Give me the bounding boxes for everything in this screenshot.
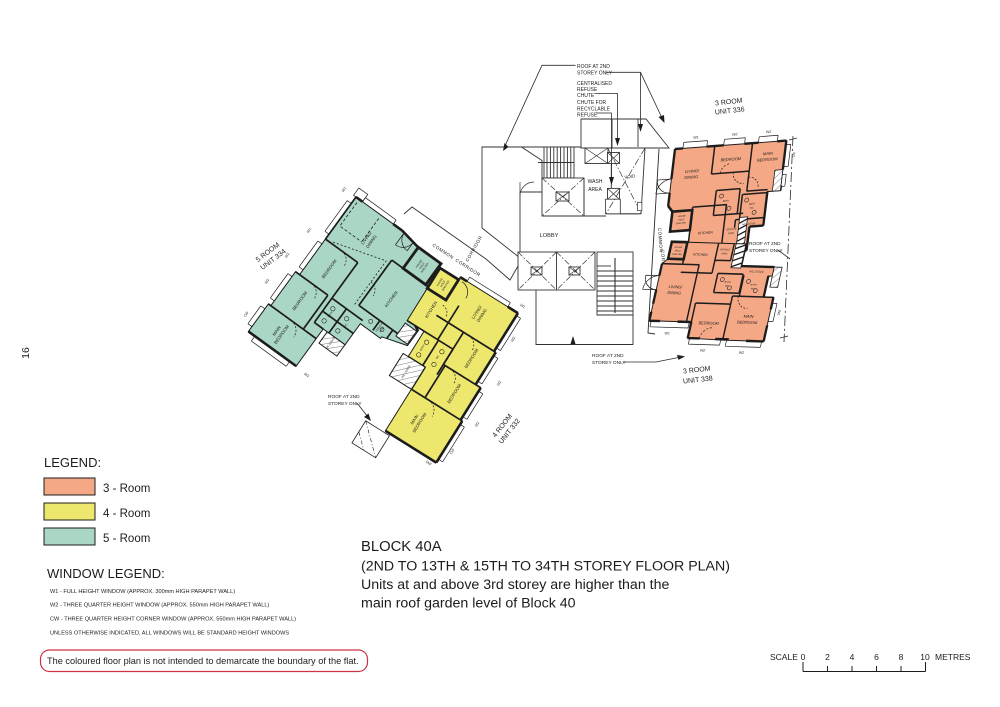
svg-text:UNLESS OTHERWISE INDICATED, AL: UNLESS OTHERWISE INDICATED, ALL WINDOWS … bbox=[50, 631, 289, 637]
svg-text:CW - THREE QUARTER HEIGHT CORN: CW - THREE QUARTER HEIGHT CORNER WINDOW … bbox=[50, 617, 296, 623]
svg-text:W1 - FULL HEIGHT WINDOW (APPRO: W1 - FULL HEIGHT WINDOW (APPROX. 300mm H… bbox=[50, 589, 235, 595]
svg-text:WASH: WASH bbox=[588, 179, 603, 185]
svg-text:KITCHEN: KITCHEN bbox=[693, 252, 709, 256]
svg-text:LEGEND:: LEGEND: bbox=[44, 455, 101, 470]
svg-text:CHUTE FOR: CHUTE FOR bbox=[577, 100, 607, 106]
svg-text:W2: W2 bbox=[732, 132, 738, 136]
svg-text:BLOCK 40A: BLOCK 40A bbox=[361, 539, 442, 555]
svg-text:BATH: BATH bbox=[724, 281, 731, 284]
svg-text:4 - Room: 4 - Room bbox=[103, 508, 150, 520]
svg-text:STOREY ONLY: STOREY ONLY bbox=[592, 360, 626, 366]
svg-text:MAIN: MAIN bbox=[743, 314, 754, 319]
svg-text:METRES: METRES bbox=[935, 652, 971, 662]
svg-text:DINING: DINING bbox=[667, 290, 682, 295]
svg-text:WC: WC bbox=[723, 203, 728, 206]
svg-text:SHELTER: SHELTER bbox=[672, 254, 683, 256]
svg-text:MAIN: MAIN bbox=[763, 151, 774, 157]
svg-text:5 - Room: 5 - Room bbox=[103, 533, 150, 545]
svg-text:STOREY ONLY: STOREY ONLY bbox=[749, 248, 783, 254]
svg-text:8: 8 bbox=[899, 652, 904, 662]
svg-text:4: 4 bbox=[850, 652, 855, 662]
svg-text:ROOF AT 2ND: ROOF AT 2ND bbox=[328, 394, 360, 400]
svg-text:BATH: BATH bbox=[723, 199, 730, 202]
svg-text:WC: WC bbox=[749, 206, 754, 209]
svg-text:SCALE: SCALE bbox=[770, 652, 798, 662]
svg-text:6: 6 bbox=[874, 652, 879, 662]
svg-text:LIVING/: LIVING/ bbox=[668, 284, 684, 289]
svg-text:16: 16 bbox=[20, 347, 32, 359]
svg-text:REFUSE: REFUSE bbox=[577, 113, 598, 119]
svg-text:10: 10 bbox=[920, 652, 930, 662]
svg-text:HOUSE: HOUSE bbox=[674, 247, 683, 249]
svg-text:BATH: BATH bbox=[750, 284, 757, 287]
svg-text:AREA: AREA bbox=[588, 187, 602, 193]
svg-text:W2: W2 bbox=[700, 349, 706, 353]
svg-text:Units at and above 3rd storey: Units at and above 3rd storey are higher… bbox=[361, 577, 669, 593]
svg-text:ROOF AT 2ND: ROOF AT 2ND bbox=[749, 241, 781, 247]
svg-text:3 - Room: 3 - Room bbox=[103, 483, 150, 495]
svg-text:BEDROOM: BEDROOM bbox=[698, 320, 719, 326]
svg-text:The coloured floor plan is not: The coloured floor plan is not intended … bbox=[47, 656, 359, 666]
svg-text:W2 - THREE QUARTER HEIGHT WIND: W2 - THREE QUARTER HEIGHT WINDOW (APPROX… bbox=[50, 603, 269, 609]
svg-text:YARD: YARD bbox=[721, 252, 728, 255]
svg-text:ROOF AT 2ND: ROOF AT 2ND bbox=[577, 64, 610, 70]
svg-text:CHUTE: CHUTE bbox=[577, 93, 595, 99]
svg-text:WINDOW LEGEND:: WINDOW LEGEND: bbox=[47, 566, 165, 581]
svg-text:0: 0 bbox=[801, 652, 806, 662]
svg-text:W1: W1 bbox=[693, 135, 699, 139]
svg-text:BATH: BATH bbox=[749, 202, 756, 205]
svg-text:STOREY ONLY: STOREY ONLY bbox=[577, 71, 613, 77]
svg-text:YARD: YARD bbox=[727, 232, 734, 235]
svg-text:main roof garden level of Bloc: main roof garden level of Block 40 bbox=[361, 596, 576, 612]
svg-text:W1: W1 bbox=[664, 331, 670, 335]
svg-text:(2ND TO 13TH & 15TH TO 34TH ST: (2ND TO 13TH & 15TH TO 34TH STOREY FLOOR… bbox=[361, 559, 730, 575]
svg-text:SERVICE: SERVICE bbox=[720, 248, 731, 251]
svg-text:HOLD: HOLD bbox=[674, 250, 681, 252]
svg-text:STOREY ONLY: STOREY ONLY bbox=[328, 401, 362, 407]
svg-text:W2: W2 bbox=[766, 130, 772, 134]
svg-text:LOBBY: LOBBY bbox=[540, 233, 559, 239]
svg-text:BEDROOM: BEDROOM bbox=[737, 319, 758, 325]
svg-text:2: 2 bbox=[825, 652, 830, 662]
svg-text:A/C LEDGE: A/C LEDGE bbox=[749, 269, 765, 273]
svg-text:ROOF AT 2ND: ROOF AT 2ND bbox=[592, 353, 624, 359]
svg-text:W2: W2 bbox=[738, 351, 744, 355]
